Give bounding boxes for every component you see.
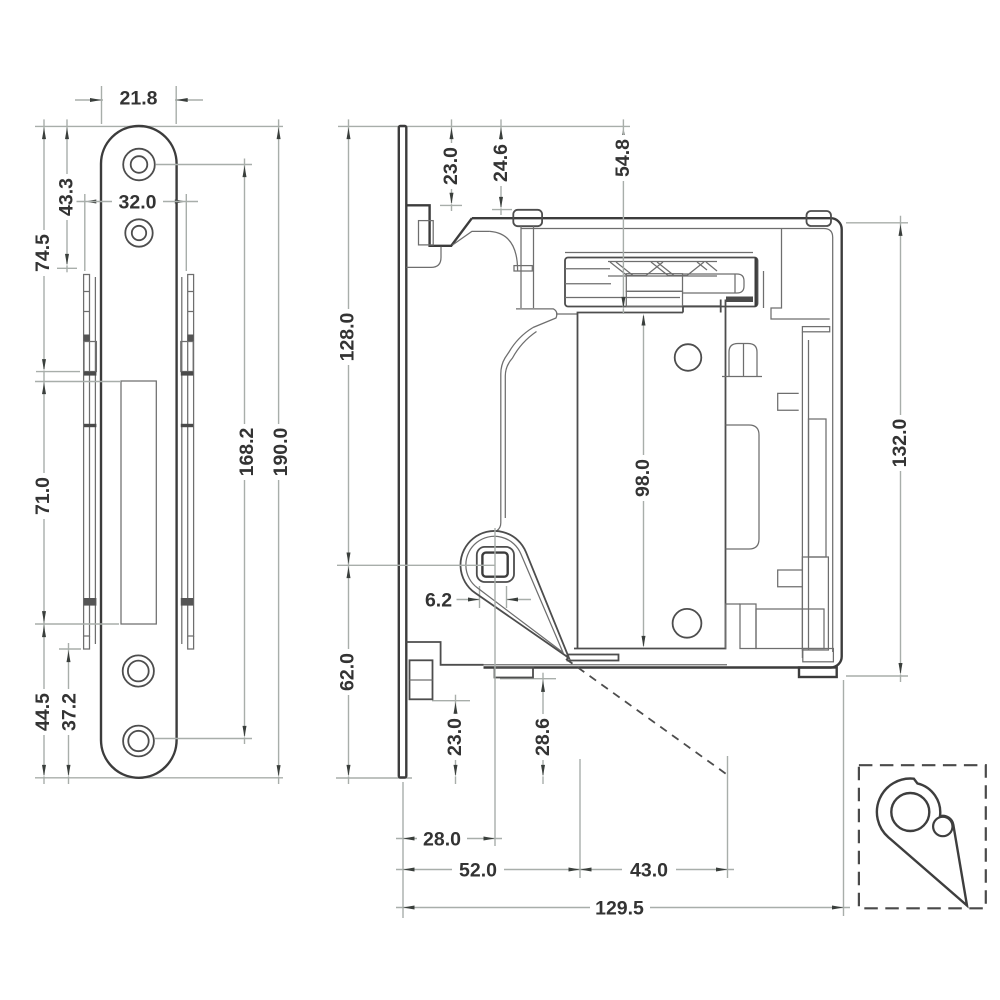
svg-text:32.0: 32.0 [119,192,157,214]
svg-text:128.0: 128.0 [337,312,359,361]
svg-text:21.8: 21.8 [120,88,158,110]
svg-text:23.0: 23.0 [440,147,462,185]
svg-text:54.8: 54.8 [612,139,634,177]
svg-text:44.5: 44.5 [32,693,54,731]
svg-text:132.0: 132.0 [889,418,911,467]
svg-text:28.6: 28.6 [532,718,554,756]
svg-text:74.5: 74.5 [32,234,54,272]
svg-text:6.2: 6.2 [425,590,452,612]
svg-text:23.0: 23.0 [444,718,466,756]
svg-text:129.5: 129.5 [595,898,644,920]
svg-text:43.0: 43.0 [630,860,668,882]
svg-text:168.2: 168.2 [236,427,258,476]
svg-text:190.0: 190.0 [270,427,292,476]
svg-text:37.2: 37.2 [59,693,81,731]
svg-text:28.0: 28.0 [423,829,461,851]
svg-text:62.0: 62.0 [337,653,359,691]
svg-text:43.3: 43.3 [56,178,78,216]
svg-text:52.0: 52.0 [459,860,497,882]
svg-text:24.6: 24.6 [490,144,512,182]
svg-text:98.0: 98.0 [632,459,654,497]
svg-text:71.0: 71.0 [32,477,54,515]
